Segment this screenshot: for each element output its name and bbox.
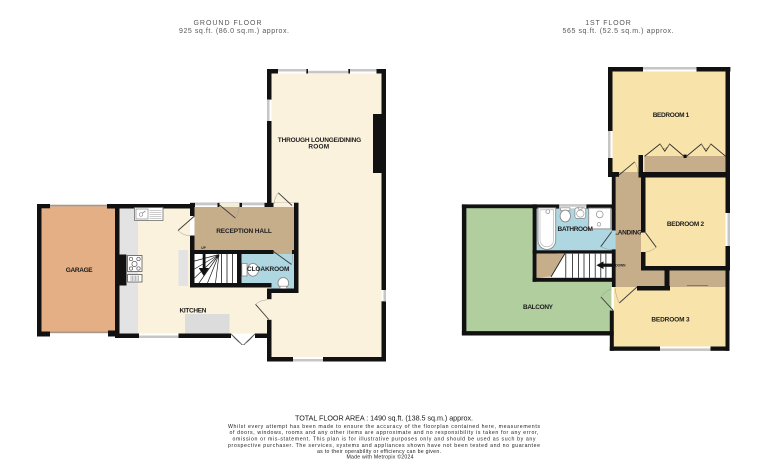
svg-text:GROUND FLOOR: GROUND FLOOR <box>194 20 262 27</box>
svg-text:Whilst every attempt has been: Whilst every attempt has been made to en… <box>228 424 540 430</box>
svg-text:TOTAL FLOOR AREA : 1490 sq.ft.: TOTAL FLOOR AREA : 1490 sq.ft. (138.5 sq… <box>295 413 473 422</box>
svg-text:KITCHEN: KITCHEN <box>180 307 207 314</box>
svg-text:ROOM: ROOM <box>308 144 329 151</box>
svg-text:Made with Metropix ©2024: Made with Metropix ©2024 <box>347 454 414 461</box>
svg-text:BEDROOM 1: BEDROOM 1 <box>653 112 690 119</box>
svg-text:BATHROOM: BATHROOM <box>558 226 593 233</box>
svg-text:BALCONY: BALCONY <box>523 304 554 311</box>
svg-text:565 sq.ft. (52.5 sq.m.) approx: 565 sq.ft. (52.5 sq.m.) approx. <box>563 28 674 35</box>
svg-text:GARAGE: GARAGE <box>66 267 94 274</box>
svg-text:of doors, windows, rooms and a: of doors, windows, rooms and any other i… <box>230 430 539 436</box>
svg-text:RECEPTION HALL: RECEPTION HALL <box>216 228 272 235</box>
svg-text:BEDROOM 3: BEDROOM 3 <box>651 316 690 323</box>
svg-text:DOWN: DOWN <box>615 264 626 268</box>
svg-text:1ST FLOOR: 1ST FLOOR <box>585 20 631 27</box>
svg-text:CLOAKROOM: CLOAKROOM <box>247 266 289 273</box>
svg-text:BEDROOM 2: BEDROOM 2 <box>667 221 705 228</box>
svg-text:LANDING: LANDING <box>614 230 642 237</box>
svg-text:omission or mis-statement. Thi: omission or mis-statement. This plan is … <box>233 437 536 443</box>
svg-text:925 sq.ft. (86.0 sq.m.) approx: 925 sq.ft. (86.0 sq.m.) approx. <box>179 28 289 35</box>
